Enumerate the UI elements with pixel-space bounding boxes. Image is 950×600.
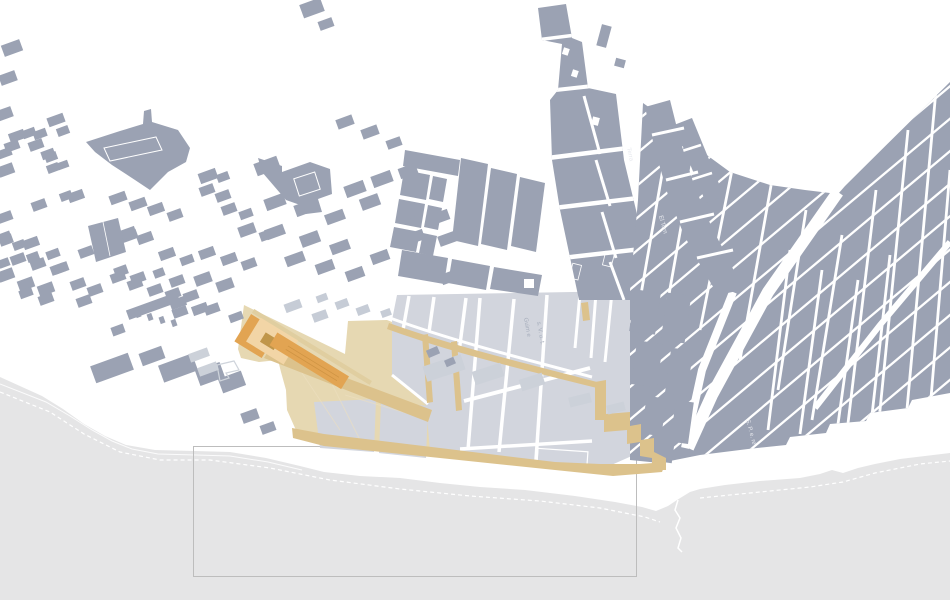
svg-text:Terra: Terra bbox=[625, 147, 634, 162]
